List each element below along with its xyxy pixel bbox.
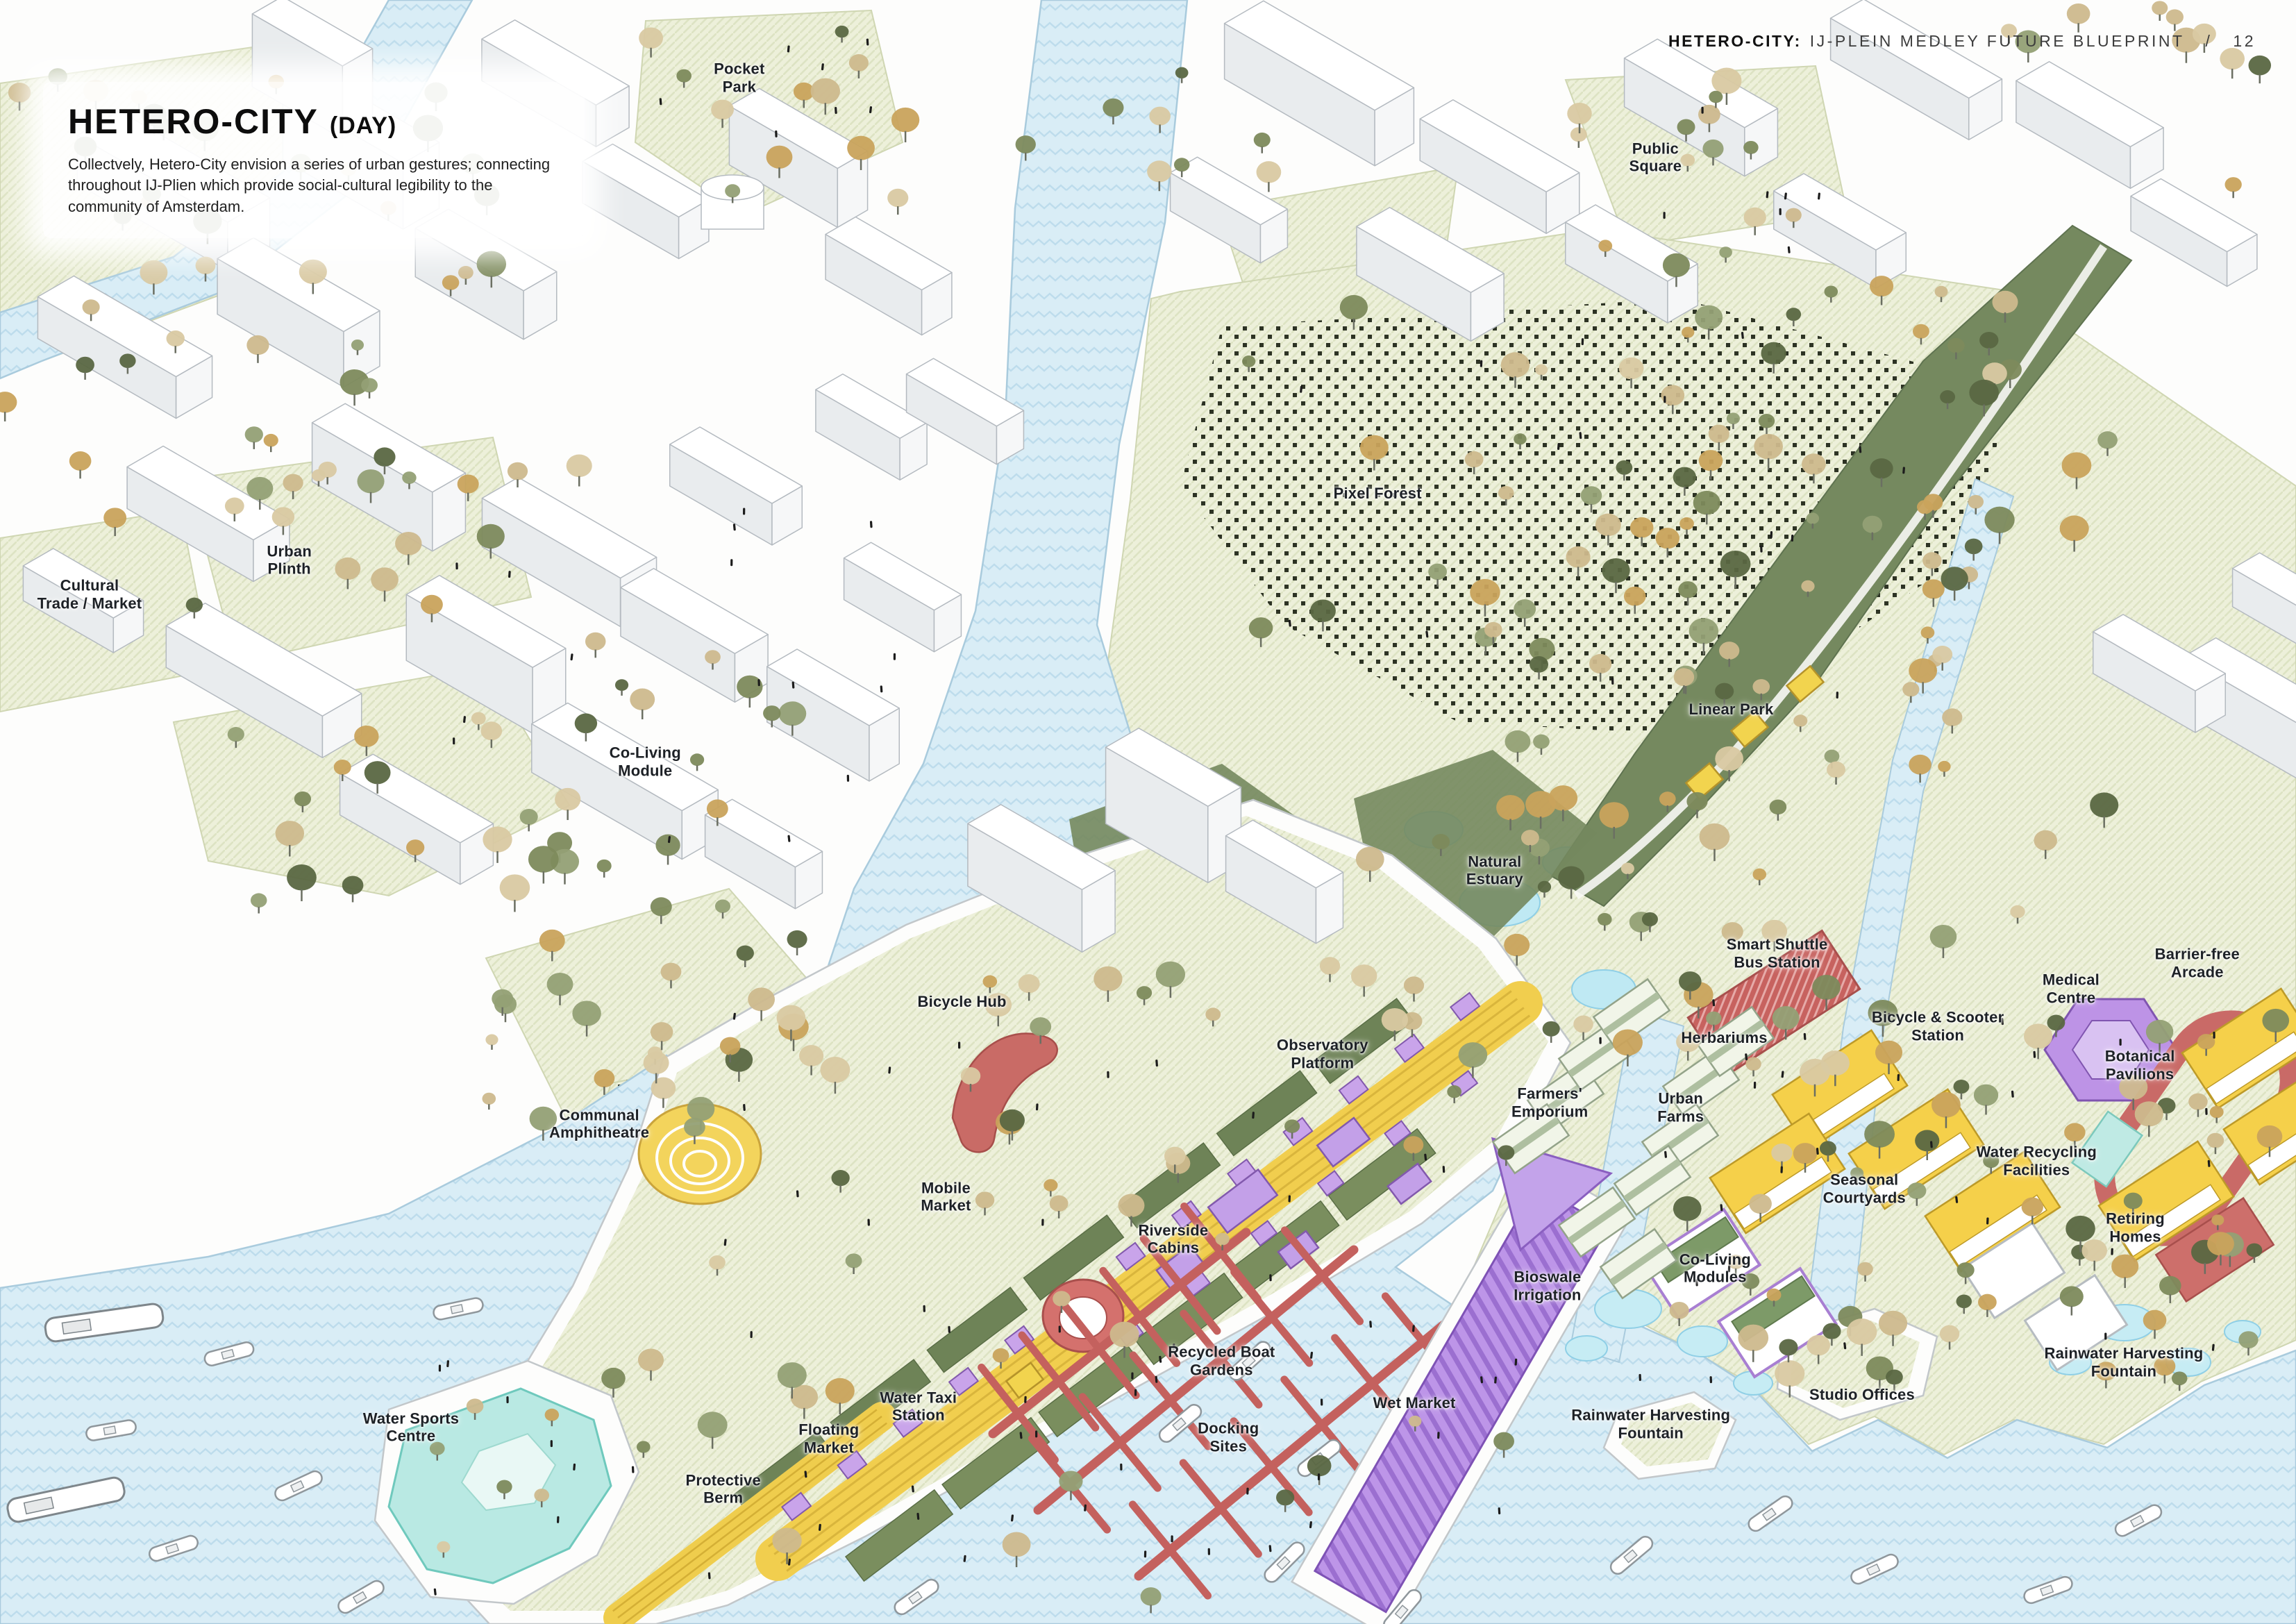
page-header: HETERO-CITY:IJ-PLEIN MEDLEY FUTURE BLUEP… xyxy=(1668,32,2256,51)
label-water-taxi-station: Water Taxi Station xyxy=(880,1389,957,1424)
label-retiring-homes: Retiring Homes xyxy=(2106,1210,2165,1246)
map-labels-layer: Pocket ParkPublic SquarePixel ForestUrba… xyxy=(0,0,2296,1624)
header-page-number: 12 xyxy=(2233,32,2256,50)
label-rainwater-harvesting-fountain-east: Rainwater Harvesting Fountain xyxy=(2044,1345,2203,1380)
label-riverside-cabins: Riverside Cabins xyxy=(1138,1221,1208,1257)
label-bicycle-hub: Bicycle Hub xyxy=(918,993,1007,1011)
label-recycled-boat-gardens: Recycled Boat Gardens xyxy=(1168,1343,1275,1379)
header-title: IJ-PLEIN MEDLEY FUTURE BLUEPRINT xyxy=(1810,32,2185,50)
label-urban-farms: Urban Farms xyxy=(1657,1090,1704,1125)
label-observatory-platform: Observatory Platform xyxy=(1277,1036,1368,1071)
label-bicycle-scooter-station: Bicycle & Scooter Station xyxy=(1872,1009,2004,1044)
label-co-living-modules: Co-Living Modules xyxy=(1679,1250,1751,1286)
label-cultural-trade-market: Cultural Trade / Market xyxy=(37,577,142,612)
label-smart-shuttle-bus-station: Smart Shuttle Bus Station xyxy=(1727,935,1828,971)
label-mobile-market: Mobile Market xyxy=(921,1179,971,1214)
label-medical-centre: Medical Centre xyxy=(2043,971,2100,1007)
label-linear-park: Linear Park xyxy=(1689,701,1773,719)
label-natural-estuary: Natural Estuary xyxy=(1466,853,1523,888)
label-studio-offices: Studio Offices xyxy=(1809,1386,1915,1404)
header-brand: HETERO-CITY: xyxy=(1668,32,1802,50)
label-bioswale-irrigation: Bioswale Irrigation xyxy=(1514,1269,1581,1304)
label-seasonal-courtyards: Seasonal Courtyards xyxy=(1823,1171,1906,1207)
page-title-suffix: (DAY) xyxy=(330,112,396,140)
title-block: HETERO-CITY (DAY) Collectvely, Hetero-Ci… xyxy=(43,82,585,238)
label-herbariums: Herbariums xyxy=(1681,1029,1767,1047)
label-barrier-free-arcade: Barrier-free Arcade xyxy=(2155,946,2240,981)
label-co-living-module: Co-Living Module xyxy=(610,744,681,779)
label-pixel-forest: Pixel Forest xyxy=(1334,485,1422,503)
label-pocket-park: Pocket Park xyxy=(714,60,764,96)
label-urban-plinth: Urban Plinth xyxy=(267,542,312,578)
header-separator: / xyxy=(2206,32,2213,50)
blueprint-page: Pocket ParkPublic SquarePixel ForestUrba… xyxy=(0,0,2296,1624)
label-water-sports-centre: Water Sports Centre xyxy=(363,1409,460,1445)
label-communal-amphitheatre: Communal Amphitheatre xyxy=(549,1106,649,1141)
label-botanical-pavilions: Botanical Pavilions xyxy=(2105,1048,2175,1083)
label-water-recycling-facilities: Water Recycling Facilities xyxy=(1977,1144,2097,1179)
page-description: Collectvely, Hetero-City envision a seri… xyxy=(68,154,554,217)
label-rainwater-harvesting-fountain-south: Rainwater Harvesting Fountain xyxy=(1571,1407,1730,1442)
label-farmers-emporium: Farmers' Emporium xyxy=(1511,1085,1588,1121)
page-title: HETERO-CITY xyxy=(68,101,319,142)
label-public-square: Public Square xyxy=(1629,140,1682,175)
label-protective-berm: Protective Berm xyxy=(686,1471,761,1507)
label-floating-market: Floating Market xyxy=(798,1421,859,1457)
label-docking-sites: Docking Sites xyxy=(1198,1419,1259,1455)
label-wet-market: Wet Market xyxy=(1373,1394,1456,1412)
